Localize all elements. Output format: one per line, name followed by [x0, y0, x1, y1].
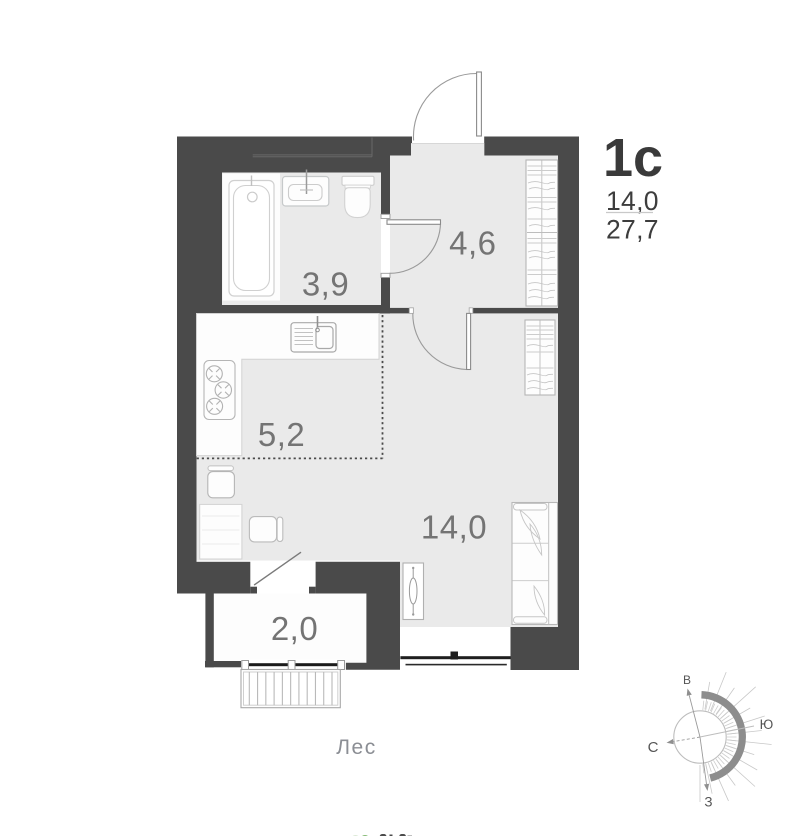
svg-text:С: С	[648, 739, 659, 756]
svg-text:14,0: 14,0	[606, 186, 659, 216]
svg-text:2,0: 2,0	[271, 610, 318, 647]
svg-text:1с: 1с	[603, 128, 663, 188]
svg-text:5,2: 5,2	[258, 416, 305, 453]
svg-text:Ю: Ю	[760, 717, 774, 732]
svg-text:27,7: 27,7	[606, 215, 659, 245]
svg-text:4,6: 4,6	[449, 225, 496, 262]
svg-text:Лес: Лес	[336, 736, 376, 759]
svg-text:В: В	[683, 673, 691, 687]
svg-text:14,0: 14,0	[421, 509, 487, 546]
svg-text:З: З	[704, 795, 712, 810]
svg-text:3,9: 3,9	[302, 266, 349, 303]
